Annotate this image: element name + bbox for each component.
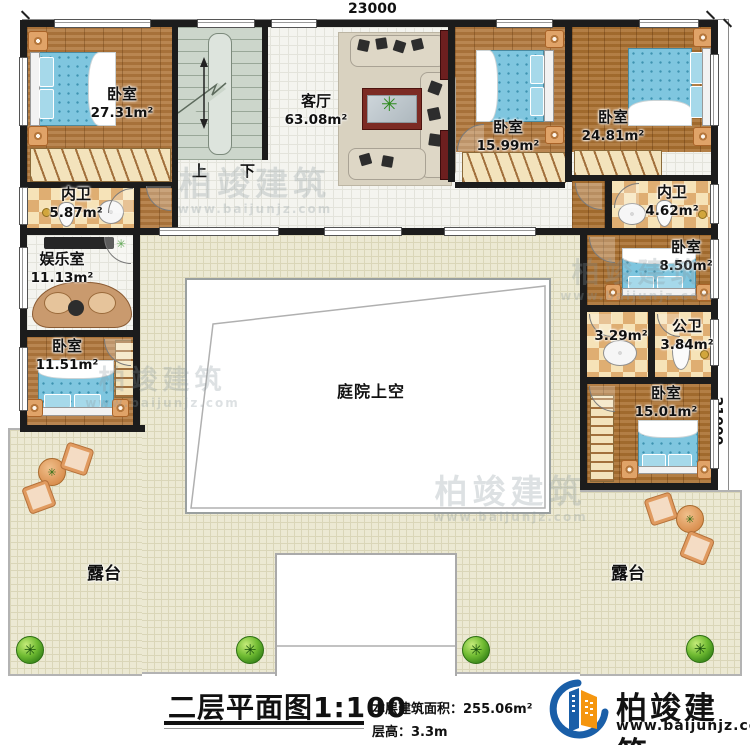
window (20, 58, 27, 125)
bed-headboard (38, 407, 114, 416)
nightstand (545, 126, 564, 144)
window (198, 20, 254, 27)
room-area: 63.08m² (285, 112, 348, 128)
wall (580, 377, 711, 384)
bed-headboard (638, 466, 698, 474)
sofa-pillow (381, 155, 394, 168)
room-label-bedroom-tl: 卧室 27.31m² (91, 85, 154, 121)
window (711, 185, 718, 223)
pillow (39, 57, 54, 87)
room-area: 3.29m² (594, 328, 647, 344)
window (711, 55, 718, 125)
terrace-right-label: 露台 (611, 565, 645, 584)
room-area: 3.84m² (660, 337, 713, 353)
room-name: 卧室 (52, 337, 82, 355)
room-name: 卧室 (107, 85, 137, 103)
nightstand (28, 126, 48, 146)
wardrobe (574, 150, 662, 178)
floor-plan-page: 23000 21000 庭院上空 (0, 0, 750, 745)
plant-glyph: ✳ (470, 641, 483, 659)
courtyard-void: 庭院上空 (185, 278, 551, 514)
room-name: 露台 (611, 564, 645, 584)
wall (580, 305, 711, 312)
room-label-bedroom-br: 卧室 15.01m² (635, 384, 698, 420)
room-area: 11.51m² (36, 357, 99, 373)
bed-sheet (476, 50, 498, 122)
room-name: 娱乐室 (39, 250, 84, 268)
notch-step-line (277, 645, 455, 647)
room-area: 27.31m² (91, 105, 154, 121)
nightstand (693, 28, 713, 47)
wall (565, 175, 711, 181)
window (55, 20, 150, 27)
window (445, 228, 535, 235)
wall (134, 182, 140, 228)
courtyard-label: 庭院上空 (337, 378, 405, 402)
lamp (698, 210, 707, 219)
room-name: 露台 (87, 564, 121, 584)
room-label-bath-right: 内卫 4.62m² (645, 183, 698, 219)
pillow (39, 89, 54, 119)
window (20, 188, 27, 224)
room-area: 4.62m² (645, 203, 698, 219)
room-label-bedroom-tm: 卧室 15.99m² (477, 118, 540, 154)
wall (20, 425, 145, 432)
room-label-bath-left: 内卫 5.87m² (49, 185, 102, 221)
sofa-cushion (88, 292, 116, 314)
floor-height-label: 层高：3.3m (372, 721, 448, 740)
nightstand (697, 460, 712, 479)
title-underline (164, 721, 364, 725)
room-name: 卧室 (671, 238, 701, 256)
window (20, 348, 27, 410)
nightstand (545, 30, 564, 48)
pillow (530, 87, 544, 116)
plant-icon: ✳ (686, 635, 714, 663)
plant-icon: ✳ (16, 636, 44, 664)
stairs-down-label: 下 (240, 160, 255, 181)
room-name: 内卫 (657, 183, 687, 201)
terrace-table: ✳ (676, 505, 704, 533)
wall (172, 27, 178, 235)
bed-headboard (544, 50, 554, 122)
room-label-entertainment: 娱乐室 11.13m² (31, 250, 94, 286)
room-label-bedroom-mr: 卧室 8.50m² (659, 238, 712, 274)
wall (448, 27, 455, 182)
floor-area-label: 本层建筑面积：255.06m² (372, 698, 532, 717)
room-name: 内卫 (61, 185, 91, 203)
plant-icon: ✳ (236, 636, 264, 664)
window (272, 20, 316, 27)
window (20, 248, 27, 308)
stairs-up-label: 上 (192, 160, 207, 181)
wardrobe (462, 152, 566, 183)
sofa-pillow (375, 37, 388, 50)
room-label-bedroom-ml: 卧室 11.51m² (36, 337, 99, 373)
room-name: 客厅 (301, 92, 331, 110)
bed-headboard (622, 288, 696, 296)
room-label-bedroom-tr: 卧室 24.81m² (582, 108, 645, 144)
wall (605, 181, 612, 228)
plant-icon: ✳ (462, 636, 490, 664)
room-area: 15.01m² (635, 404, 698, 420)
room-label-wash: 3.29m² (594, 326, 647, 344)
logo-name: 柏竣建筑 (616, 683, 750, 745)
room-area: 8.50m² (659, 258, 712, 274)
bed-sheet (638, 420, 698, 438)
sofa-pillow (427, 107, 441, 121)
wall (648, 312, 655, 377)
bed-headboard (702, 48, 711, 126)
nightstand (112, 399, 129, 417)
nightstand (696, 284, 712, 301)
plant-icon: ✳ (685, 513, 694, 526)
wardrobe (30, 148, 171, 182)
room-area: 11.13m² (31, 270, 94, 286)
wall (565, 27, 572, 182)
window (325, 228, 401, 235)
plant-glyph: ✳ (24, 641, 37, 659)
wall (262, 27, 268, 160)
window (160, 228, 278, 235)
nightstand (28, 31, 48, 51)
nightstand (605, 284, 621, 301)
title-underline-thin (164, 728, 364, 729)
plant-glyph: ✳ (694, 640, 707, 658)
room-area: 24.81m² (582, 128, 645, 144)
nightstand (621, 460, 638, 479)
wall (455, 182, 565, 188)
logo-url: www.baijunjz.com (616, 718, 750, 734)
pillow (74, 394, 101, 408)
sofa-pillow (357, 39, 370, 52)
logo-icon (545, 678, 611, 742)
room-area: 5.87m² (49, 205, 102, 221)
side-table (68, 300, 84, 316)
wall (580, 483, 718, 490)
window (497, 20, 552, 27)
room-label-living: 客厅 63.08m² (285, 92, 348, 128)
room-name: 卧室 (598, 108, 628, 126)
pillow (530, 55, 544, 84)
room-name: 卧室 (493, 118, 523, 136)
plant-icon: ✳ (47, 466, 56, 479)
plant-icon: ✳ (381, 94, 398, 114)
plant-glyph: ✳ (244, 641, 257, 659)
window (640, 20, 698, 27)
top-dimension-label: 23000 (348, 1, 397, 17)
window (711, 400, 718, 468)
wall (580, 235, 587, 490)
room-name: 公卫 (672, 317, 702, 335)
pillow (44, 394, 71, 408)
wall (20, 330, 140, 337)
room-area: 15.99m² (477, 138, 540, 154)
nightstand (26, 399, 43, 417)
room-name: 卧室 (651, 384, 681, 402)
stair-break-line (178, 27, 262, 160)
terrace-notch (275, 553, 457, 676)
room-label-public-bath: 公卫 3.84m² (660, 317, 713, 353)
nightstand (693, 127, 713, 146)
terrace-left-label: 露台 (87, 565, 121, 584)
